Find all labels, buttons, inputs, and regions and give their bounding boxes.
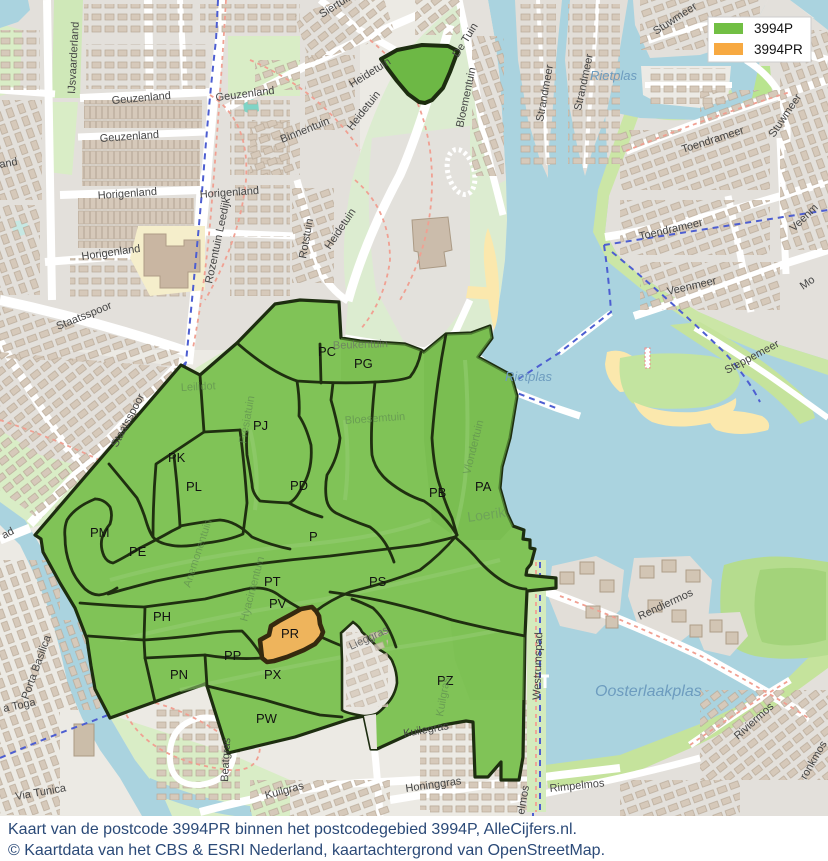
svg-text:3994P: 3994P bbox=[754, 21, 793, 36]
svg-text:PX: PX bbox=[264, 667, 282, 682]
svg-text:Westrumspad: Westrumspad bbox=[531, 632, 545, 700]
svg-text:PB: PB bbox=[429, 485, 446, 500]
svg-text:PM: PM bbox=[90, 525, 110, 540]
svg-text:PR: PR bbox=[281, 626, 299, 641]
svg-text:PE: PE bbox=[129, 544, 147, 559]
svg-text:Beukentuin: Beukentuin bbox=[333, 338, 388, 352]
svg-text:Oosterlaakplas: Oosterlaakplas bbox=[595, 683, 702, 700]
svg-text:PA: PA bbox=[475, 479, 492, 494]
svg-text:PD: PD bbox=[290, 478, 308, 493]
svg-text:Rietplas: Rietplas bbox=[505, 369, 552, 384]
svg-text:PT: PT bbox=[264, 574, 281, 589]
svg-text:© Kaartdata van het CBS & ESRI: © Kaartdata van het CBS & ESRI Nederland… bbox=[8, 842, 605, 859]
svg-text:PS: PS bbox=[369, 574, 387, 589]
svg-text:PL: PL bbox=[186, 479, 202, 494]
svg-text:Rietplas: Rietplas bbox=[590, 68, 637, 83]
svg-text:PN: PN bbox=[170, 667, 188, 682]
svg-text:PG: PG bbox=[354, 356, 373, 371]
svg-text:3994PR: 3994PR bbox=[754, 42, 803, 57]
svg-text:PW: PW bbox=[256, 711, 278, 726]
svg-text:P: P bbox=[309, 529, 318, 544]
svg-text:PP: PP bbox=[224, 648, 241, 663]
svg-text:Kaart van de postcode 3994PR b: Kaart van de postcode 3994PR binnen het … bbox=[8, 821, 577, 838]
svg-text:PJ: PJ bbox=[253, 418, 268, 433]
svg-text:Beatgras: Beatgras bbox=[219, 737, 233, 782]
svg-text:PV: PV bbox=[269, 596, 287, 611]
svg-text:PH: PH bbox=[153, 609, 171, 624]
svg-text:PK: PK bbox=[168, 450, 186, 465]
svg-text:Leilidot: Leilidot bbox=[181, 380, 216, 394]
